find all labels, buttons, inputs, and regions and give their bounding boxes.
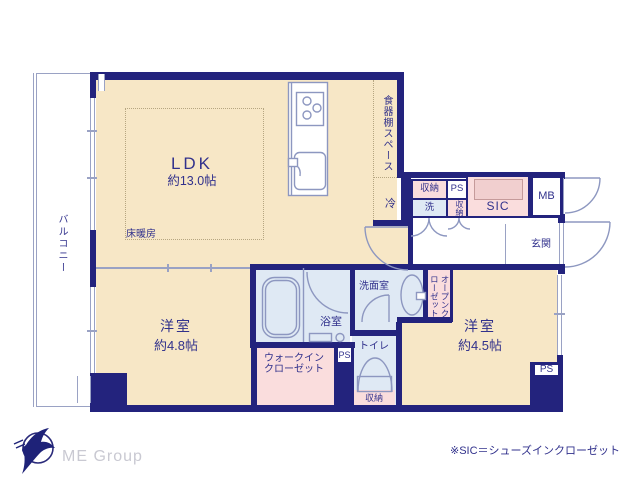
ldk-door-swing bbox=[365, 227, 408, 270]
toilet-tank-icon bbox=[358, 377, 392, 392]
washbasin-faucet-icon bbox=[417, 293, 426, 300]
me-group-logo-text: ME Group bbox=[62, 448, 143, 466]
toilet-label: トイレ bbox=[356, 340, 392, 353]
pipe-space-br-label: PS bbox=[533, 363, 560, 377]
washer-label: 洗 bbox=[411, 202, 448, 214]
floor-plan: LDK 約13.0帖 床暖房 食器棚スペース 冷 収納 洗 PS 収納 SIC … bbox=[0, 0, 640, 480]
bath-drain-icon bbox=[336, 334, 344, 342]
bathtub-inner bbox=[266, 281, 297, 335]
bathroom-door-swing bbox=[307, 272, 348, 313]
entrance-door-swing bbox=[565, 222, 610, 267]
hall-storage-door-arcs bbox=[448, 218, 470, 229]
washroom-door-swing bbox=[362, 295, 389, 322]
meter-box-door-swing bbox=[565, 178, 600, 213]
bathtub-icon bbox=[263, 278, 300, 338]
bedroom-45-label: 洋室 bbox=[450, 318, 510, 335]
washroom-label: 洗面室 bbox=[353, 280, 395, 293]
kitchen-faucet-icon bbox=[289, 159, 298, 167]
me-group-logo bbox=[14, 428, 55, 474]
shoes-in-closet-label: SIC bbox=[466, 199, 530, 214]
entrance-label: 玄関 bbox=[524, 238, 558, 251]
cupboard-space-label: 食器棚スペース bbox=[377, 91, 392, 175]
bathroom-label: 浴室 bbox=[315, 315, 347, 329]
washer-closet-door-arcs bbox=[411, 218, 447, 236]
toilet-cabinet-door-arc bbox=[375, 358, 392, 392]
balcony-label: バルコニー bbox=[52, 213, 67, 275]
fridge-label: 冷 bbox=[382, 197, 399, 211]
storage-side-label: 収納 bbox=[451, 199, 464, 217]
floor-heating-label: 床暖房 bbox=[126, 228, 166, 241]
pipe-space-label: PS bbox=[446, 183, 468, 195]
toilet-cabinet-door-arc bbox=[358, 358, 375, 392]
meter-box-label: MB bbox=[530, 189, 563, 203]
bedroom-45-size: 約4.5帖 bbox=[447, 338, 513, 354]
storage-label: 収納 bbox=[411, 183, 448, 195]
pipe-space-mid-label: PS bbox=[336, 348, 353, 363]
sic-footnote: ※SIC＝シューズインクローゼット bbox=[420, 444, 620, 459]
ldk-label: LDK bbox=[152, 155, 232, 173]
walk-in-closet-label: ウォークイン クローゼット bbox=[252, 350, 336, 378]
open-closet-label: オープンクローゼット bbox=[427, 272, 450, 321]
bedroom-48-size: 約4.8帖 bbox=[143, 338, 209, 354]
ldk-size-label: 約13.0帖 bbox=[152, 174, 232, 189]
bedroom-48-label: 洋室 bbox=[146, 318, 206, 335]
bath-counter-icon bbox=[310, 334, 332, 342]
toilet-storage-label: 収納 bbox=[358, 392, 390, 404]
